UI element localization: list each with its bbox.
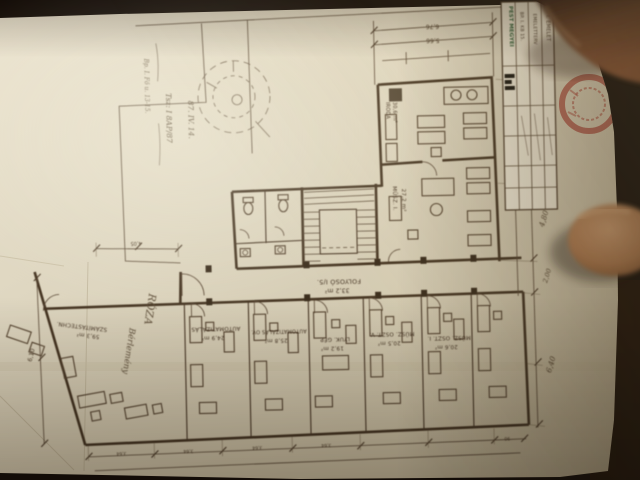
dim-bottom-4: 3,64 — [321, 442, 331, 448]
dim-top-2: 5,66 — [426, 36, 440, 43]
room-r5-area: 20,6 m² — [435, 343, 458, 350]
dim-top-1: 6,76 — [426, 22, 440, 29]
dim-bottom-2: 3,64 — [183, 448, 193, 454]
dim-bottom-3: 3,64 — [252, 444, 262, 450]
room-wing-area: 27,2 m² — [400, 189, 407, 212]
room-r1-area: 24,9 m² — [201, 334, 224, 341]
note-line-2: Tsz: I 8AP/87 — [164, 93, 174, 143]
room-r4-label: MŰSZ. OSZT. V. — [369, 330, 414, 338]
note-line-1: Bp. I. Fő u. 13-15. — [142, 58, 150, 114]
plan-photo-svg: FOLYOSÓ I/5. 33,2 m² AUTOMATIZÁLÁS 24,9 … — [0, 0, 640, 480]
corridor-label: FOLYOSÓ I/5. — [317, 277, 362, 287]
dim-bottom-1: 3,64 — [116, 450, 126, 456]
corridor-area: 33,2 m² — [324, 286, 349, 294]
room-r1-label: AUTOMATIZÁLÁS — [191, 325, 241, 333]
room-wing-upper-label: IRODA — [384, 102, 390, 120]
title-block-row2: EMELETTERV — [531, 13, 538, 45]
title-block-row1: BP. I. KB 15. — [518, 12, 525, 41]
title-block: PEST MEGYEI BP. I. KB 15. EMELETTERV I. … — [501, 1, 557, 210]
room-r2-area: 25,8 m² — [265, 337, 288, 344]
room-r2-label: AUTOMATIZÁLÁS OV. — [251, 327, 307, 335]
dim-inner-1: 4,05 — [130, 240, 141, 246]
room-r3-area: 19,2 m² — [321, 345, 344, 352]
room-wing-label: MŰSZ. I. — [391, 186, 399, 211]
photographed-floor-plan: FOLYOSÓ I/5. 33,2 m² AUTOMATIZÁLÁS 24,9 … — [0, 0, 640, 480]
room-wing-upper-area: 30,6 m² — [391, 102, 397, 123]
note-line-3: 87. IV. 14. — [186, 101, 196, 139]
room-r5-label: MŰSZ. OSZT. I. — [427, 334, 471, 342]
dim-bottom-5: 90 — [504, 435, 510, 441]
title-block-org: PEST MEGYEI — [507, 6, 514, 47]
room-r4-area: 20,5 m² — [378, 339, 401, 346]
